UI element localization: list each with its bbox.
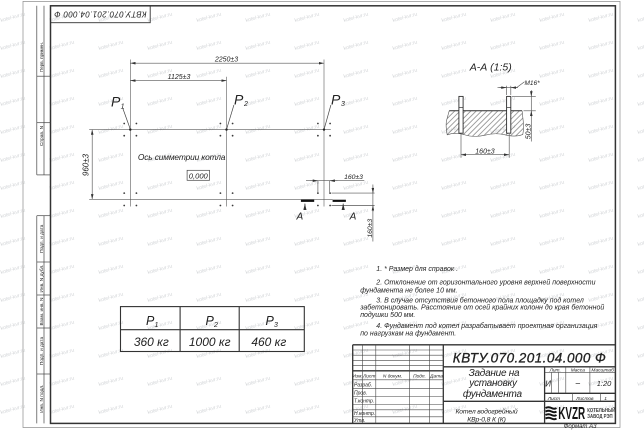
svg-text:160±3: 160±3	[344, 174, 363, 181]
svg-text:Масштаб: Масштаб	[591, 367, 614, 373]
svg-text:P: P	[331, 92, 341, 108]
svg-text:P: P	[234, 92, 244, 108]
svg-text:1: 1	[604, 396, 607, 402]
svg-text:Лит.: Лит.	[549, 367, 561, 373]
svg-text:по нагрузкам на фундамент.: по нагрузкам на фундамент.	[360, 330, 456, 338]
svg-text:Формат А3: Формат А3	[564, 424, 597, 430]
svg-text:Т.контр.: Т.контр.	[354, 398, 374, 404]
svg-text:Подп. и дата: Подп. и дата	[39, 337, 45, 366]
svg-text:установку: установку	[468, 378, 518, 389]
svg-text:160±3: 160±3	[367, 219, 374, 238]
svg-text:КВТУ.070.201.04.000 Ф: КВТУ.070.201.04.000 Ф	[453, 351, 606, 366]
svg-text:Взам. инв. N: Взам. инв. N	[39, 297, 45, 326]
svg-text:Дата: Дата	[429, 374, 443, 380]
svg-text:фундамента: фундамента	[463, 388, 523, 400]
svg-text:KVZR: KVZR	[558, 404, 585, 424]
svg-text:360 кг: 360 кг	[134, 335, 169, 349]
svg-text:160±3: 160±3	[475, 148, 495, 155]
svg-text:И: И	[545, 379, 551, 388]
svg-text:1000 кг: 1000 кг	[189, 335, 231, 349]
svg-text:Инв. N подл.: Инв. N подл.	[39, 385, 45, 413]
svg-text:960±3: 960±3	[82, 153, 91, 176]
svg-text:Изм.: Изм.	[352, 374, 362, 380]
svg-text:Ось симметрии котла: Ось симметрии котла	[138, 152, 226, 162]
svg-text:Н.контр.: Н.контр.	[354, 411, 375, 417]
svg-text:Справ. N: Справ. N	[39, 125, 45, 146]
svg-text:фундамента не более 10 мм.: фундамента не более 10 мм.	[360, 286, 457, 294]
svg-text:1125±3: 1125±3	[168, 74, 191, 81]
svg-text:Подп. и дата: Подп. и дата	[39, 224, 45, 253]
svg-text:Масса: Масса	[571, 367, 586, 373]
svg-text:Инв. N дубл.: Инв. N дубл.	[39, 264, 45, 292]
svg-text:1. * Размер для справок .: 1. * Размер для справок .	[376, 265, 458, 273]
svg-text:Утв.: Утв.	[354, 418, 365, 424]
svg-text:2: 2	[243, 101, 248, 108]
svg-text:1: 1	[155, 322, 159, 329]
svg-text:4. Фундамент под котел разраба: 4. Фундамент под котел разрабатывает про…	[376, 322, 597, 330]
svg-text:Подп.: Подп.	[413, 374, 426, 380]
svg-text:1: 1	[121, 104, 125, 111]
svg-text:А-А (1:5): А-А (1:5)	[469, 61, 512, 73]
svg-text:ЗАВОД РЭП: ЗАВОД РЭП	[587, 414, 613, 419]
svg-text:подушки 500 мм.: подушки 500 мм.	[360, 311, 415, 319]
svg-text:2. Отклонение от горизонтально: 2. Отклонение от горизонтального уровня …	[375, 278, 595, 286]
svg-text:Лист: Лист	[547, 396, 560, 402]
svg-text:Разраб.: Разраб.	[354, 382, 372, 388]
svg-text:2250±3: 2250±3	[214, 57, 238, 64]
svg-text:50±3: 50±3	[526, 124, 533, 140]
svg-text:3: 3	[341, 101, 345, 108]
svg-text:КВТУ.070.201.04.000 Ф: КВТУ.070.201.04.000 Ф	[54, 10, 147, 19]
svg-text:Лист: Лист	[362, 374, 375, 380]
svg-text:3: 3	[274, 322, 278, 329]
svg-text:460 кг: 460 кг	[251, 335, 286, 349]
svg-text:N докум.: N докум.	[383, 374, 402, 380]
svg-text:М16*: М16*	[525, 80, 541, 87]
svg-text:–: –	[575, 378, 581, 387]
svg-text:2: 2	[213, 322, 218, 329]
svg-text:P: P	[111, 94, 121, 110]
svg-text:Пров.: Пров.	[354, 390, 367, 396]
svg-text:Перв. примен.: Перв. примен.	[39, 42, 44, 72]
svg-text:1:20: 1:20	[597, 379, 612, 388]
svg-text:Котел водогрейный: Котел водогрейный	[455, 407, 517, 415]
svg-text:А: А	[296, 211, 304, 222]
svg-text:3. В случае отсутствия бетонно: 3. В случае отсутствия бетонного пола пл…	[376, 296, 584, 304]
svg-text:Листов: Листов	[575, 396, 594, 402]
svg-text:КВр-0,8 К (К): КВр-0,8 К (К)	[467, 417, 505, 424]
svg-text:А: А	[349, 211, 357, 222]
svg-text:0,000: 0,000	[189, 171, 209, 180]
svg-text:забетонировать. Расстояние от: забетонировать. Расстояние от осей крайн…	[359, 304, 604, 312]
